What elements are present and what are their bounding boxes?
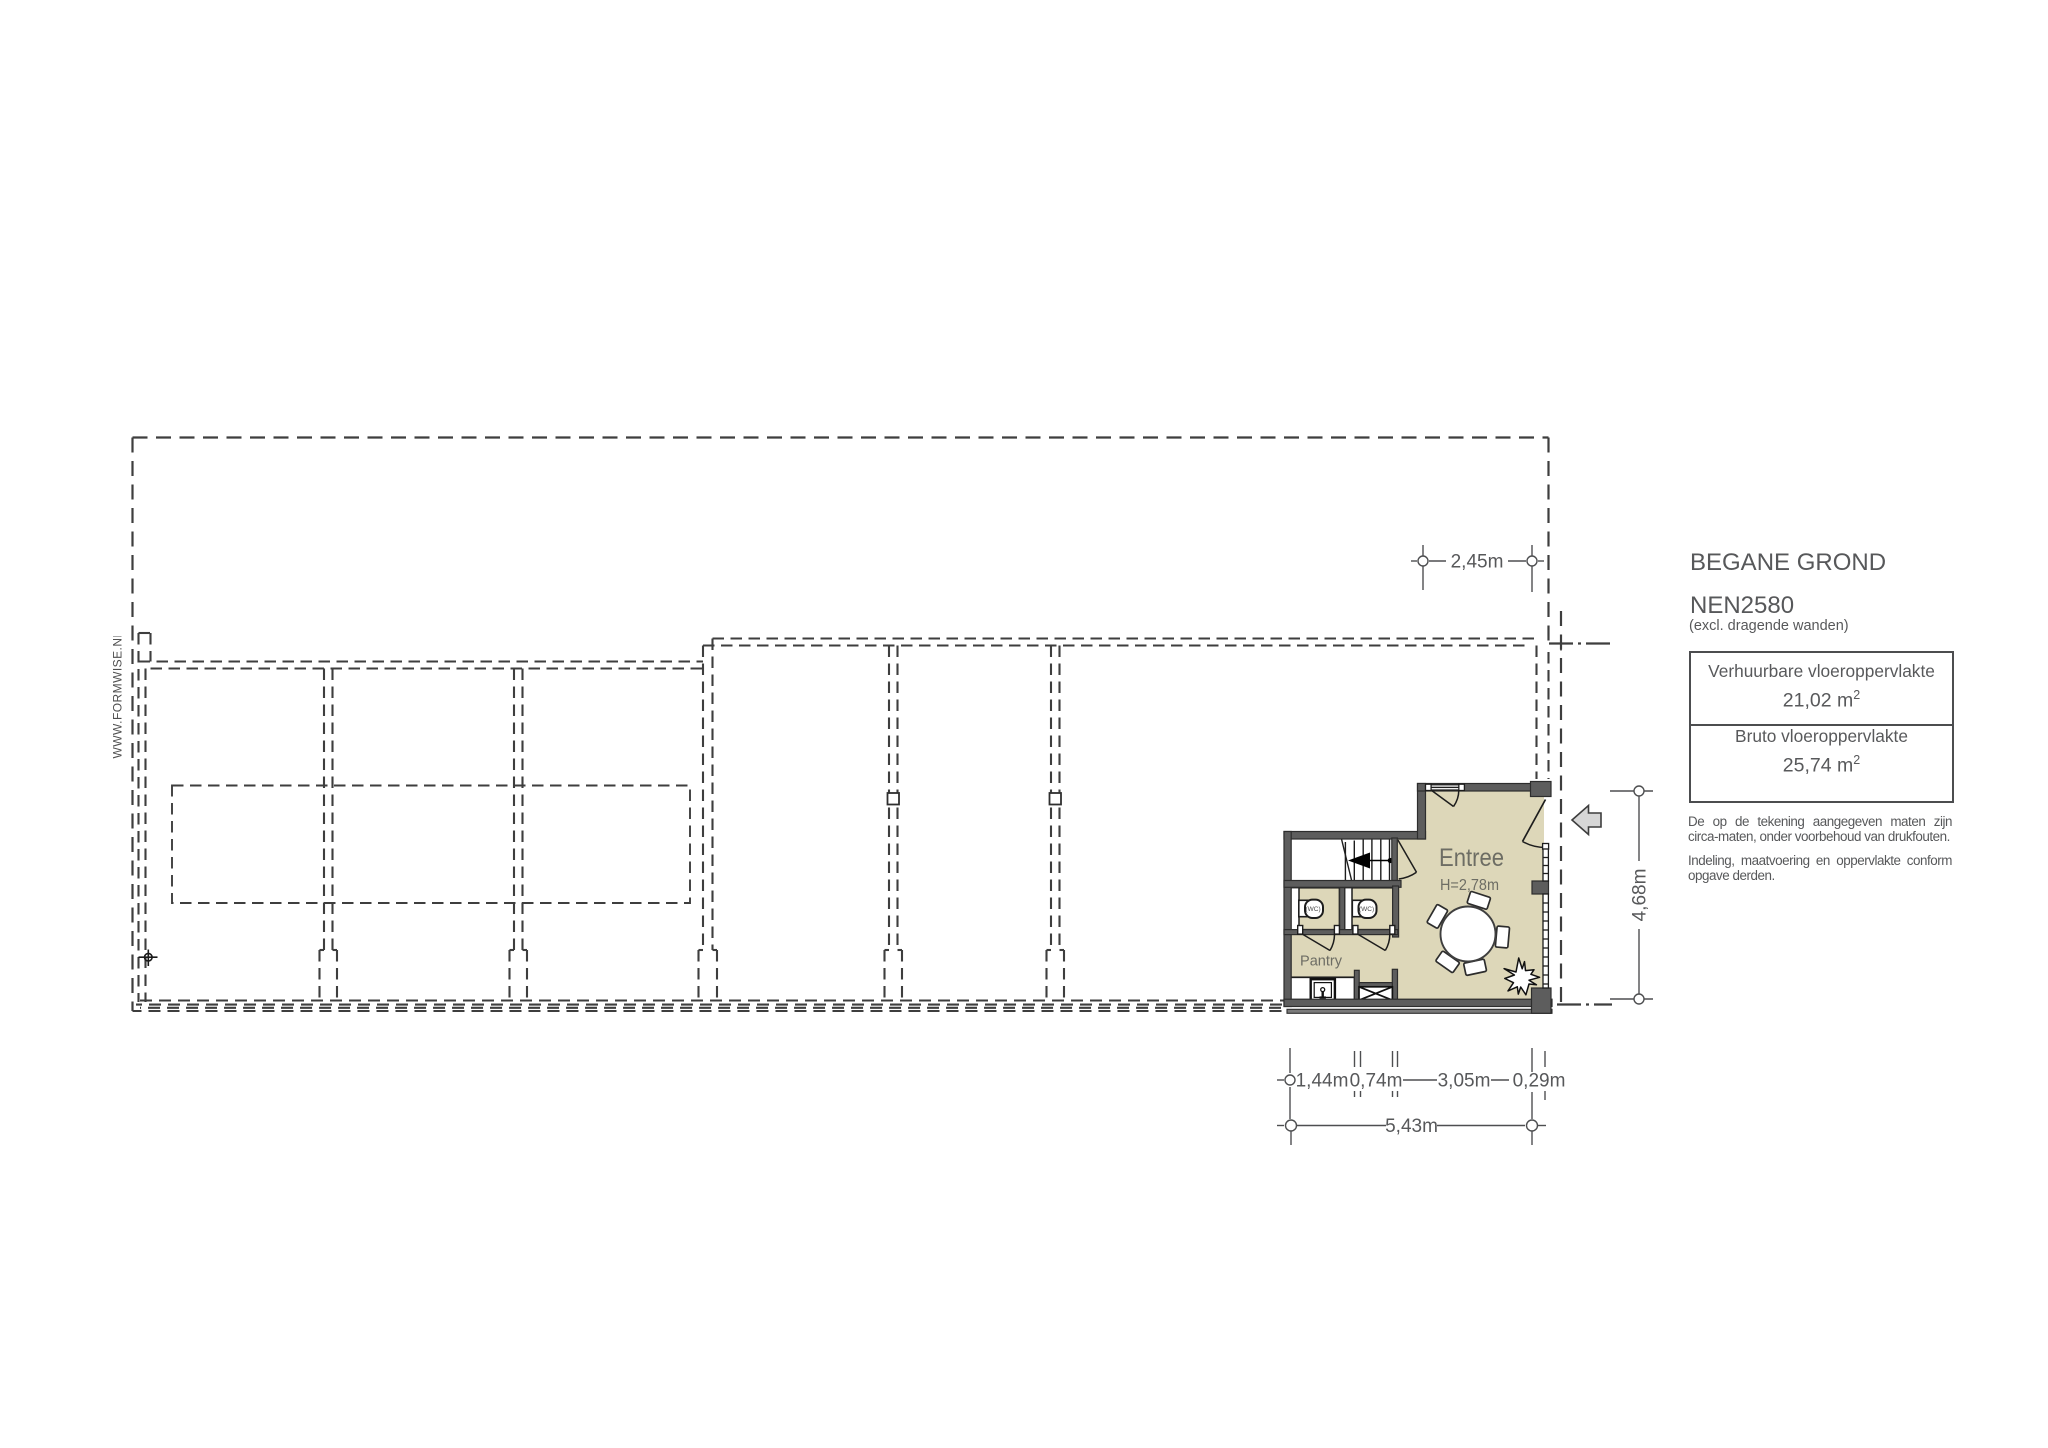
svg-text:(WC): (WC) bbox=[1306, 906, 1321, 913]
svg-text:0,29m: 0,29m bbox=[1513, 1071, 1566, 1092]
svg-text:Pantry: Pantry bbox=[1300, 953, 1342, 970]
svg-text:H=2,78m: H=2,78m bbox=[1440, 877, 1499, 894]
svg-text:Entree: Entree bbox=[1439, 844, 1504, 872]
svg-text:WWW.FORMWISE.NL: WWW.FORMWISE.NL bbox=[111, 636, 125, 759]
svg-text:2,45m: 2,45m bbox=[1451, 552, 1504, 573]
svg-text:4,68m: 4,68m bbox=[1630, 869, 1651, 922]
svg-text:3,05m: 3,05m bbox=[1438, 1071, 1491, 1092]
svg-text:1,44m: 1,44m bbox=[1296, 1071, 1349, 1092]
svg-text:5,43m: 5,43m bbox=[1385, 1116, 1438, 1137]
svg-text:0,74m: 0,74m bbox=[1350, 1071, 1403, 1092]
svg-text:(WC): (WC) bbox=[1359, 906, 1374, 913]
